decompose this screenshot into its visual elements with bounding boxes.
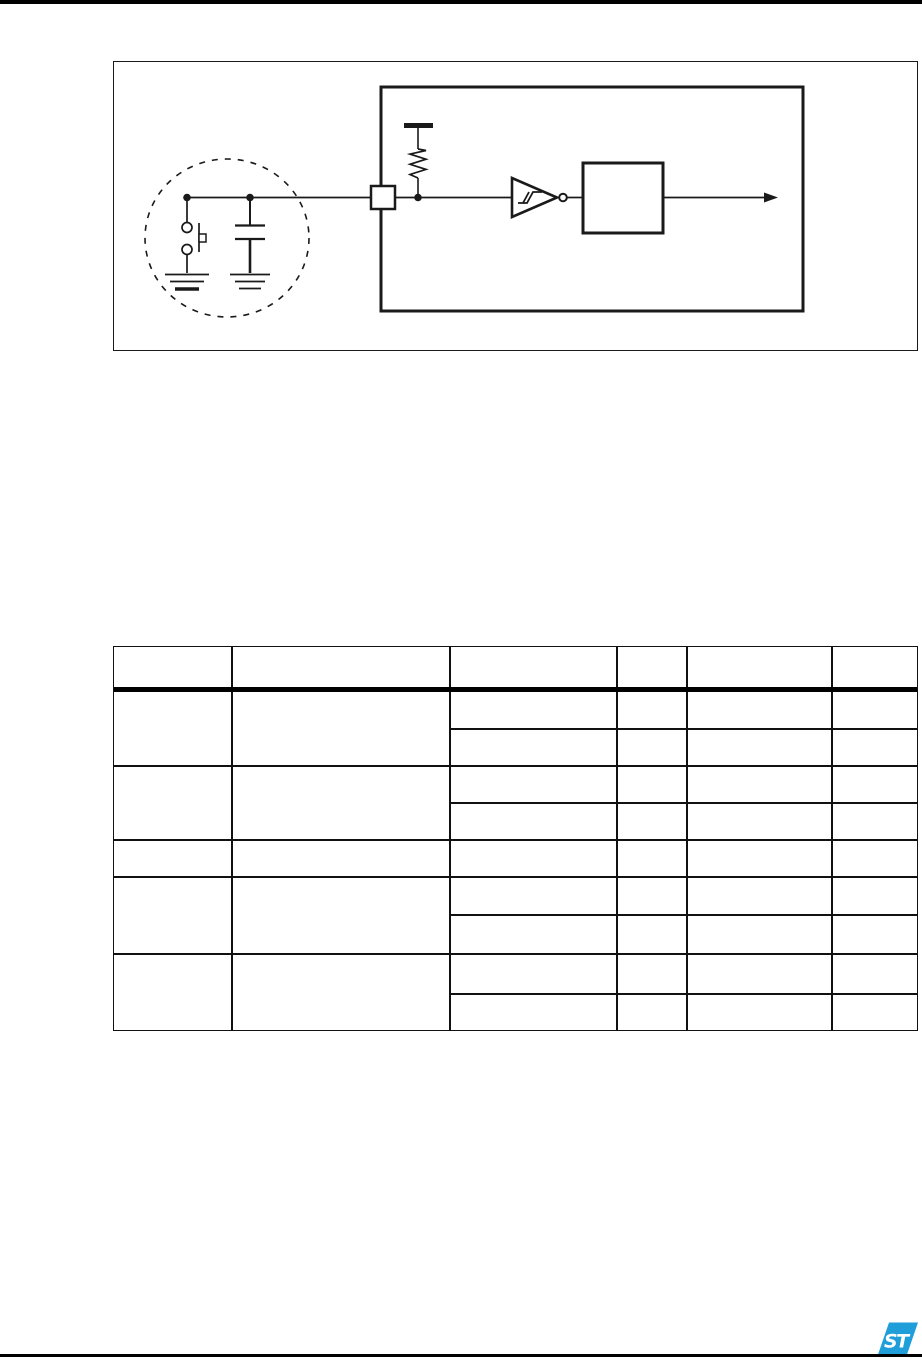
ground-symbol-left	[165, 275, 209, 290]
table-row-divider	[114, 839, 917, 841]
datasheet-page: ST	[0, 0, 922, 1361]
st-logo-icon: ST	[878, 1322, 918, 1355]
ground-symbol-right	[230, 275, 270, 289]
table-subrow-divider	[449, 728, 917, 730]
st-logo: ST	[878, 1322, 918, 1355]
table-row-divider	[114, 765, 917, 767]
table-header-rule	[114, 687, 917, 692]
filter-block-box	[583, 163, 663, 233]
node-dot	[246, 194, 254, 202]
capacitor	[235, 201, 265, 273]
push-button-switch	[182, 201, 206, 273]
reset-circuit-figure	[113, 61, 918, 351]
table-row-divider	[114, 876, 917, 878]
page-bottom-rule	[0, 1354, 922, 1357]
page-top-rule	[0, 0, 922, 4]
st-logo-monogram: ST	[884, 1331, 911, 1353]
characteristics-table	[113, 646, 918, 1031]
table-subrow-divider	[449, 993, 917, 995]
external-network-dashed-circle	[145, 159, 309, 317]
io-pad-square	[371, 186, 395, 209]
pull-up-resistor	[410, 128, 426, 198]
node-dot	[183, 194, 191, 202]
schmitt-trigger-inverter	[512, 178, 567, 217]
output-arrow	[663, 193, 778, 203]
table-subrow-divider	[449, 802, 917, 804]
vdd-rail-bar	[404, 123, 433, 128]
inverter-bubble	[559, 194, 567, 202]
table-subrow-divider	[449, 914, 917, 916]
table-row-divider	[114, 953, 917, 955]
reset-circuit-schematic	[114, 62, 915, 348]
